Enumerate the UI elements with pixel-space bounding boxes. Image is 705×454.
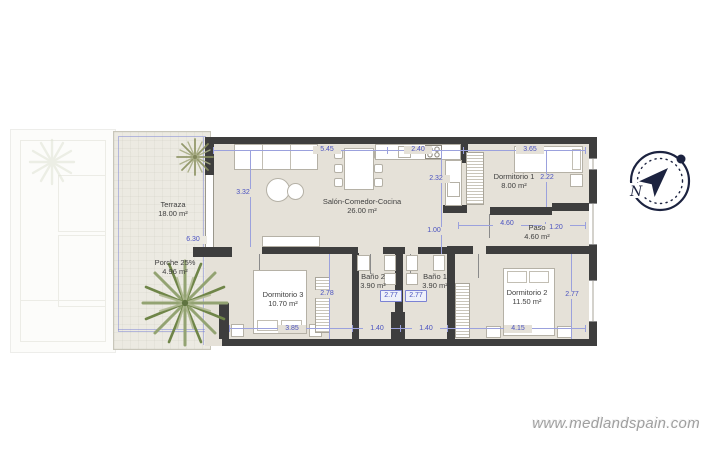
wall-right [589, 137, 597, 158]
wall-right [589, 170, 597, 203]
bath-fixture [384, 255, 396, 271]
floor-plan: 5.45 2.40 3.65 3.32 2.32 2.22 1.00 4.60 … [0, 0, 705, 454]
neighbour-room-outline [20, 300, 106, 342]
bath-fixture [357, 255, 370, 271]
chair [334, 178, 343, 187]
faded-plant-icon [26, 136, 78, 188]
wall-dorm2-top [486, 246, 589, 254]
dim-label: 1.00 [420, 227, 448, 235]
dim-label: 2.32 [422, 175, 450, 183]
dim-tick [458, 222, 459, 229]
room-area: 8.00 m² [469, 182, 559, 191]
dim-label: 5.45 [313, 146, 341, 154]
pillow [529, 271, 549, 283]
room-label-dormitorio2: Dormitorio 2 11.50 m² [482, 289, 572, 306]
nightstand [570, 174, 583, 187]
compass-icon: N [626, 146, 694, 214]
wall-paso-top [552, 203, 589, 211]
room-label-salon: Salón-Comedor-Cocina 26.00 m² [307, 198, 417, 215]
wardrobe-dorm2 [455, 283, 470, 338]
door-dorm1 [489, 214, 490, 238]
dim-tick [213, 147, 214, 154]
wall-kitchen-stub [443, 205, 467, 213]
dim-tick [585, 325, 586, 332]
room-area: 10.70 m² [238, 300, 328, 309]
wall-right [589, 245, 597, 280]
window [589, 280, 597, 322]
dim-label: 2.40 [404, 146, 432, 154]
room-label-dormitorio1: Dormitorio 1 8.00 m² [469, 173, 559, 190]
dim-tick [585, 222, 586, 229]
wall-bottom [222, 339, 597, 346]
dim-label: 3.32 [229, 189, 257, 197]
dining-table [344, 148, 374, 190]
room-area: 3.90 m² [348, 282, 398, 291]
room-label-bano2: Baño 2 3.90 m² [348, 273, 398, 290]
room-area: 4.96 m² [130, 268, 220, 277]
wall-bano1-dorm2 [447, 253, 455, 339]
dim-label: 3.85 [278, 325, 306, 333]
dim-tick [585, 147, 586, 154]
room-area: 11.50 m² [482, 298, 572, 307]
wall-paso-top [490, 207, 552, 215]
pillow [507, 271, 527, 283]
dim-label: 3.65 [516, 146, 544, 154]
dim-tick [400, 325, 401, 332]
watermark: www.medlandspain.com [520, 415, 700, 432]
room-label-paso: Paso 4.60 m² [512, 224, 562, 241]
dim-tick [463, 147, 464, 154]
door-dorm2 [478, 254, 479, 278]
dim-label: 6.30 [179, 236, 207, 244]
room-area: 18.00 m² [128, 210, 218, 219]
neighbour-room-outline [58, 235, 106, 307]
chair [374, 178, 383, 187]
kitchen-sink [447, 182, 460, 197]
wall-salon-dorm3 [262, 247, 358, 254]
window [589, 158, 597, 170]
sofa-divider [290, 145, 291, 169]
room-label-dormitorio3: Dormitorio 3 10.70 m² [238, 291, 328, 308]
chair [374, 164, 383, 173]
chair [334, 164, 343, 173]
window [589, 203, 597, 245]
wall-bano-bottom-block [391, 312, 405, 339]
dim-label-boxed: 2.77 [405, 290, 427, 302]
sofa [234, 144, 318, 170]
pillow [572, 149, 581, 170]
room-label-terraza: Terraza 18.00 m² [128, 201, 218, 218]
dim-line [441, 150, 442, 254]
pillow [257, 320, 278, 331]
room-label-bano1: Baño 1 3.90 m² [410, 273, 460, 290]
room-area: 3.90 m² [410, 282, 460, 291]
dim-label-boxed: 2.77 [380, 290, 402, 302]
plant-icon [174, 136, 216, 178]
compass-north-label: N [629, 184, 643, 200]
dim-label: 1.40 [363, 325, 391, 333]
dim-label: 1.40 [412, 325, 440, 333]
wall-top [205, 137, 597, 144]
room-area: 26.00 m² [307, 207, 417, 216]
room-label-porche: Porche 25% 4.96 m² [130, 259, 220, 276]
dim-tick [387, 147, 388, 154]
dim-line [250, 150, 251, 247]
room-area: 4.60 m² [512, 233, 562, 242]
sideboard [262, 236, 320, 247]
bath-fixture [433, 255, 445, 271]
dim-tick [352, 325, 353, 332]
coffee-table [287, 183, 304, 200]
dim-tick [447, 325, 448, 332]
bath-fixture [406, 255, 418, 271]
dim-tick [229, 325, 230, 332]
sofa-divider [262, 145, 263, 169]
door-bano2 [370, 254, 371, 274]
dim-label: 4.15 [504, 325, 532, 333]
